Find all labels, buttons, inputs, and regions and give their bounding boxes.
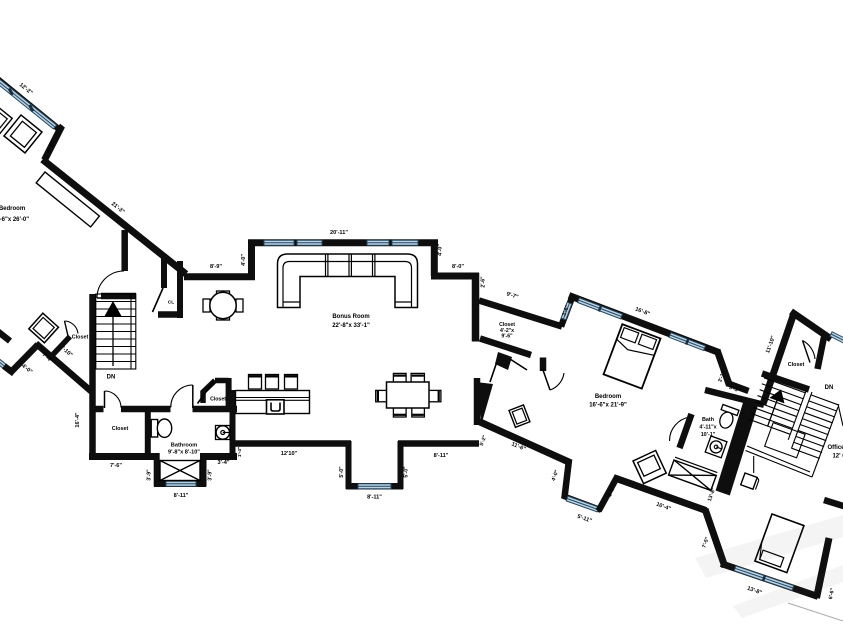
svg-text:1'-4": 1'-4": [237, 447, 243, 457]
svg-text:Closet: Closet: [72, 335, 89, 341]
svg-text:Closet: Closet: [788, 362, 805, 368]
svg-text:Bonus Room: Bonus Room: [332, 314, 369, 320]
svg-text:5'-0": 5'-0": [339, 466, 345, 478]
svg-text:Bedroom: Bedroom: [595, 394, 621, 400]
svg-text:8'-11": 8'-11": [174, 493, 189, 499]
svg-text:8'-11": 8'-11": [367, 495, 382, 501]
svg-text:Bathroom: Bathroom: [171, 443, 197, 449]
svg-text:Closet: Closet: [112, 426, 129, 432]
svg-text:3'-9": 3'-9": [208, 469, 214, 481]
svg-text:DN: DN: [107, 375, 116, 381]
svg-text:Bath: Bath: [702, 417, 714, 423]
svg-text:22'-8"x 33'-1": 22'-8"x 33'-1": [332, 323, 370, 329]
svg-text:8'-9": 8'-9": [210, 264, 222, 270]
svg-text:16'-4": 16'-4": [75, 412, 81, 428]
svg-text:8'-11": 8'-11": [434, 453, 449, 459]
svg-text:Closet: Closet: [210, 397, 226, 403]
svg-text:7'-6"x 26'-0": 7'-6"x 26'-0": [0, 217, 29, 223]
svg-text:DN: DN: [825, 385, 834, 391]
svg-text:16'-6"x 21'-9": 16'-6"x 21'-9": [589, 403, 627, 409]
svg-text:7'-6": 7'-6": [110, 463, 122, 469]
svg-text:5'-0": 5'-0": [404, 466, 410, 478]
svg-text:Bedroom: Bedroom: [0, 206, 25, 212]
svg-text:Office: Office: [827, 445, 843, 451]
svg-text:2'-6": 2'-6": [481, 276, 487, 288]
svg-text:12' 6: 12' 6: [832, 454, 843, 460]
svg-text:12'10": 12'10": [281, 451, 298, 457]
svg-text:4'-0": 4'-0": [438, 244, 444, 256]
svg-text:CL: CL: [168, 300, 174, 306]
svg-text:3'-4": 3'-4": [217, 460, 229, 466]
svg-text:4'-0": 4'-0": [241, 254, 247, 266]
svg-text:3'-9": 3'-9": [147, 469, 153, 481]
svg-text:9'-6": 9'-6": [501, 334, 513, 340]
svg-text:4'-11"x: 4'-11"x: [699, 425, 716, 431]
svg-text:8'-0": 8'-0": [452, 264, 464, 270]
svg-text:9'-8"x 8'-10": 9'-8"x 8'-10": [168, 450, 200, 456]
svg-text:20'-11": 20'-11": [330, 230, 348, 236]
